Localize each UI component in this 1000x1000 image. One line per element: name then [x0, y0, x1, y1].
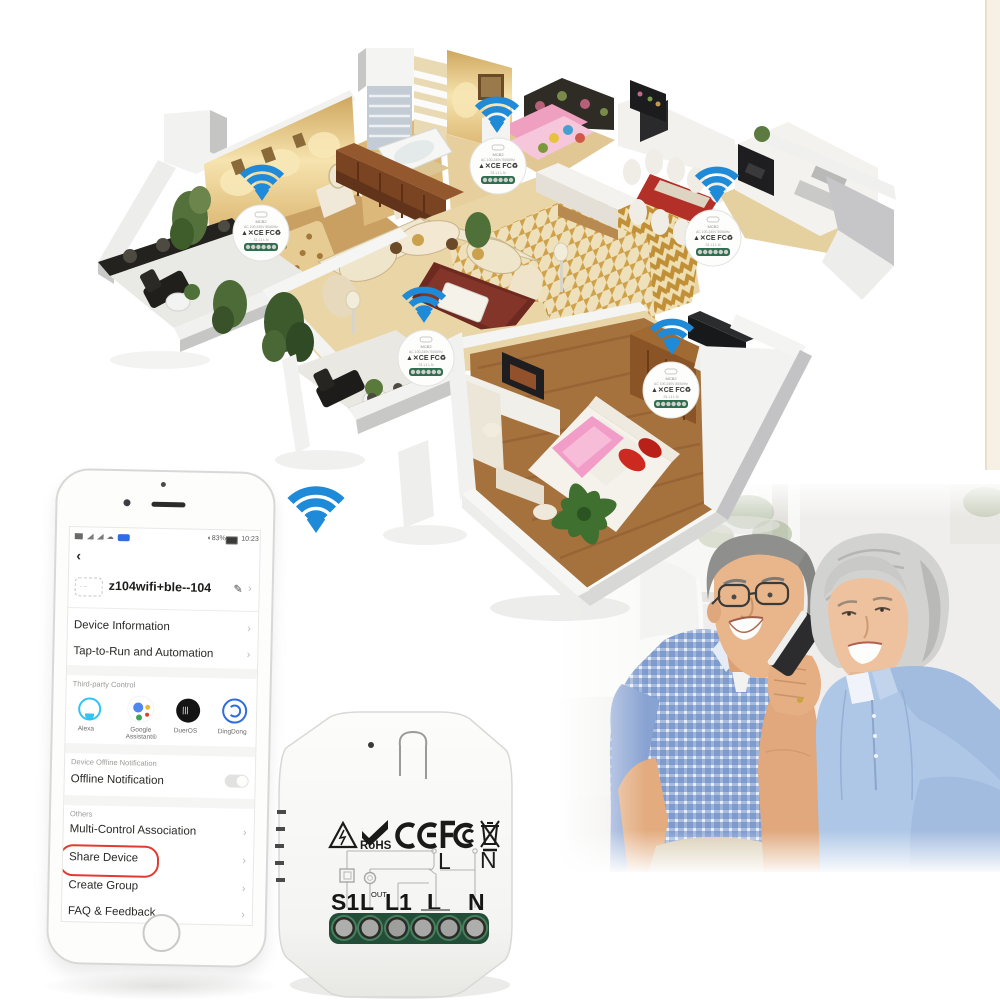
svg-text:L: L [427, 889, 441, 915]
svg-text:S1: S1 [331, 889, 359, 915]
svg-text:N: N [468, 889, 485, 915]
svg-text:N: N [480, 847, 497, 873]
svg-text:L: L [438, 848, 451, 874]
svg-text:RoHS: RoHS [360, 840, 392, 852]
svg-text:L1: L1 [385, 889, 412, 915]
svg-text:OUT: OUT [371, 890, 387, 899]
